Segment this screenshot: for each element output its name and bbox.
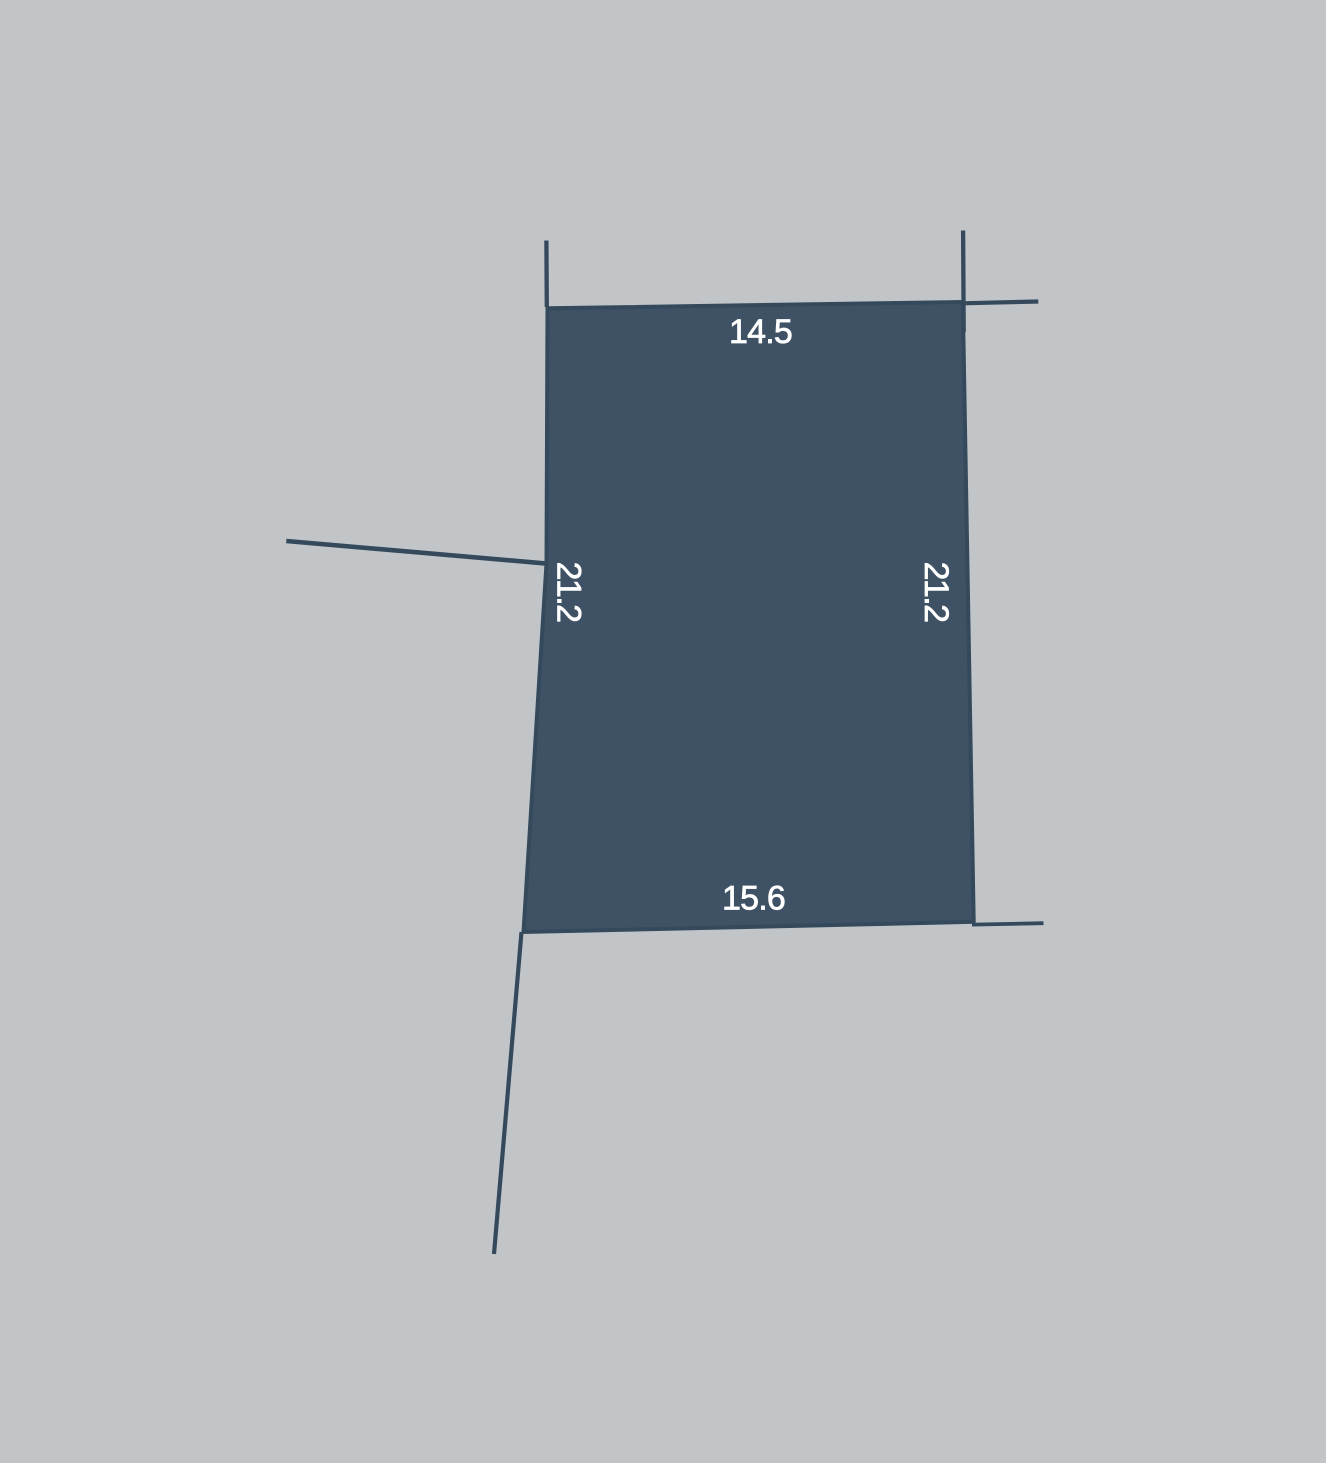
svg-text:14.5: 14.5 — [729, 313, 792, 351]
svg-text:21.2: 21.2 — [917, 562, 955, 622]
svg-text:15.6: 15.6 — [722, 880, 785, 918]
svg-text:21.2: 21.2 — [550, 562, 588, 622]
